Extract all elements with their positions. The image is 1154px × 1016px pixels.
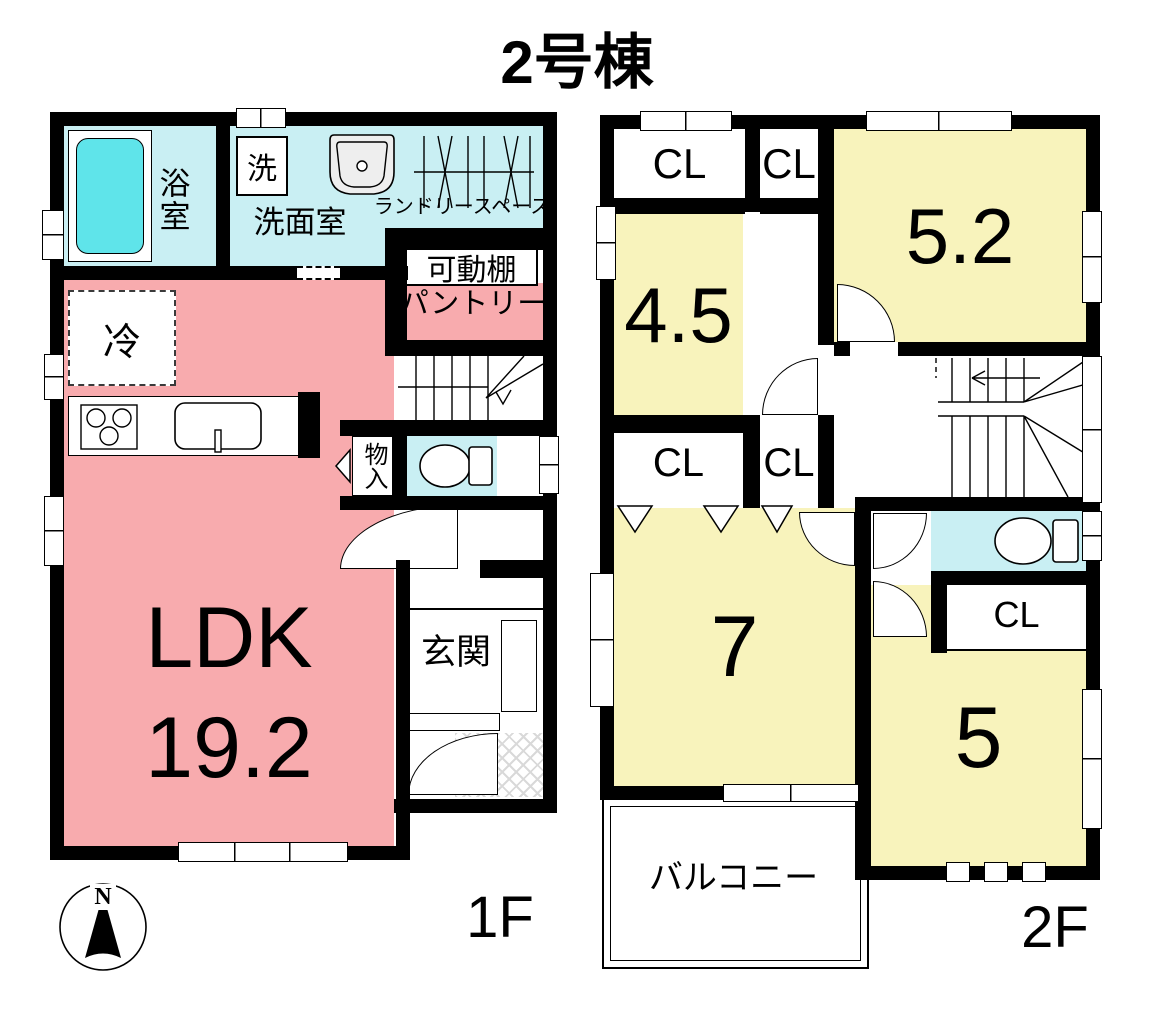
window <box>178 842 348 862</box>
wall <box>818 415 834 508</box>
washer-box: 洗 <box>236 136 288 196</box>
ldk-label: LDK <box>64 590 394 685</box>
storage-door-icon <box>334 448 352 484</box>
page-title: 2号棟 <box>0 28 1154 98</box>
wall <box>216 112 230 280</box>
wall <box>396 560 410 860</box>
wall <box>834 342 850 356</box>
wall <box>340 420 557 436</box>
kitchen-pillar-wall <box>298 392 320 458</box>
wall <box>50 266 297 280</box>
window <box>42 210 64 260</box>
fridge-box: 冷 <box>68 290 176 386</box>
entrance-step <box>408 713 500 731</box>
wall <box>480 560 543 578</box>
wall <box>600 786 732 800</box>
wall <box>388 340 543 356</box>
room-5-2-label: 5.2 <box>834 129 1086 342</box>
wall <box>898 342 1086 356</box>
balcony-label: バルコニー <box>602 855 865 901</box>
washer-label: 洗 <box>247 144 277 188</box>
wall <box>745 115 760 212</box>
room-7-label: 7 <box>614 508 855 786</box>
washroom-label: 洗面室 <box>238 202 362 242</box>
pantry-label: パントリー <box>402 288 544 320</box>
toilet-icon-1f <box>413 440 497 492</box>
ldk-size-label: 19.2 <box>64 700 394 795</box>
stairs-2f <box>928 358 1086 497</box>
window <box>1082 511 1102 561</box>
floor-plan-page: 2号棟 洗 <box>0 0 1154 1016</box>
window <box>640 111 732 131</box>
movable-shelf-box: 可動棚 <box>405 248 538 286</box>
wall <box>931 571 1086 585</box>
kitchen-sink-icon <box>172 400 264 454</box>
window <box>539 436 559 494</box>
door-arc-toilet-2f <box>873 513 927 569</box>
window <box>866 111 1012 131</box>
room-4-5-label: 4.5 <box>614 214 743 415</box>
laundry-label: ランドリースペース <box>382 194 542 220</box>
stove-icon <box>80 404 138 450</box>
closet-b-label: CL <box>760 129 818 198</box>
fridge-label: 冷 <box>103 311 141 366</box>
wall <box>614 198 745 214</box>
window <box>44 496 64 566</box>
closet-d-label: CL <box>760 433 818 493</box>
wall <box>760 198 818 214</box>
balcony-sliding-door <box>723 784 859 802</box>
room-5-label: 5 <box>871 610 1086 866</box>
sliding-door-mark <box>297 266 340 280</box>
wall <box>340 496 557 510</box>
wall <box>855 497 871 880</box>
window <box>596 206 616 280</box>
compass: N <box>56 878 150 972</box>
wall <box>743 415 760 508</box>
shoe-cabinet <box>501 620 537 712</box>
storage-label: 物入 <box>355 438 391 494</box>
wall <box>387 228 543 250</box>
door-arc-front <box>408 733 498 795</box>
wall <box>394 799 557 813</box>
closet-a-label: CL <box>614 129 745 198</box>
stairs-1f <box>398 356 543 420</box>
compass-north-label: N <box>90 884 116 910</box>
wall <box>818 115 834 345</box>
bath-label: 浴室 <box>152 160 192 240</box>
movable-shelf-label: 可動棚 <box>427 245 517 289</box>
window <box>590 573 614 707</box>
floor1-label: 1F <box>430 882 570 954</box>
closet-c-label: CL <box>614 433 743 493</box>
wall <box>614 415 744 433</box>
wall <box>871 497 1100 511</box>
door-arc-4-5 <box>762 358 818 415</box>
toilet-icon-2f <box>985 513 1085 569</box>
window <box>236 108 286 128</box>
bathtub-icon <box>76 138 144 254</box>
window <box>44 354 64 400</box>
wall <box>855 866 1100 880</box>
wall <box>50 112 557 126</box>
sink-icon <box>326 132 398 198</box>
entrance-edge-line <box>408 608 543 610</box>
floor2-label: 2F <box>985 892 1125 964</box>
entrance-label: 玄関 <box>408 630 504 674</box>
window <box>1082 356 1102 503</box>
wall <box>393 436 407 496</box>
